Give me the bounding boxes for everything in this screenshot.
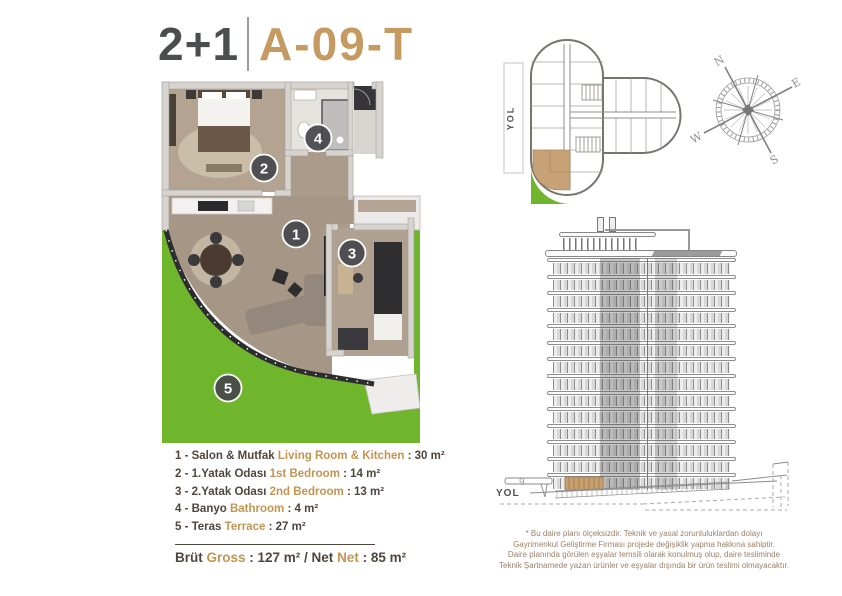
svg-text:5: 5: [224, 381, 232, 398]
room-badge-1: 1: [283, 221, 310, 248]
legend-item: 1 - Salon & Mutfak Living Room & Kitchen…: [175, 448, 425, 466]
compass-rose: N E S W: [690, 42, 815, 167]
chimney: [597, 217, 604, 232]
key-plan-road-label: YOL: [506, 106, 516, 131]
legend-item: 5 - Teras Terrace : 27 m²: [175, 519, 425, 537]
disclaimer-line: * Bu daire planı ölçeksizdir. Teknik ve …: [468, 529, 820, 540]
core-shadow: [600, 258, 640, 490]
room-badge-2: 2: [251, 155, 278, 182]
legend-divider: [175, 544, 375, 545]
svg-text:1: 1: [292, 227, 300, 244]
page-title: 2+1 A-09-T: [158, 14, 414, 74]
key-plan-unit-highlight: [533, 150, 570, 190]
roof-beam: [605, 229, 690, 231]
legend-item: 4 - Banyo Bathroom : 4 m²: [175, 501, 425, 519]
disclaimer-line: Daire planında görülen eşyalar temsili o…: [468, 550, 820, 561]
svg-text:3: 3: [348, 246, 356, 263]
room-count-label: 2+1: [158, 17, 239, 71]
core-shadow: [655, 258, 677, 490]
room-legend: 1 - Salon & Mutfak Living Room & Kitchen…: [175, 448, 425, 565]
roof-dark-patch: [652, 251, 722, 256]
room-badge-4: 4: [305, 125, 332, 152]
area-totals: Brüt Gross : 127 m² / Net Net : 85 m²: [175, 550, 425, 565]
floor-plan: 1 2 3 4 5: [158, 78, 425, 444]
key-plan: YOL: [498, 22, 688, 207]
disclaimer-line: Gayrimenkul Geliştirme Firması projede d…: [468, 540, 820, 551]
svg-text:4: 4: [314, 131, 323, 148]
compass-west-label: W: [690, 129, 705, 146]
svg-text:2: 2: [260, 161, 268, 178]
elevation-building: [553, 258, 730, 490]
building-elevation: 9 YOL: [495, 213, 805, 523]
room-badge-5: 5: [215, 375, 242, 402]
lower-balcony: [364, 374, 420, 414]
legend-item: 3 - 2.Yatak Odası 2nd Bedroom : 13 m²: [175, 484, 425, 502]
compass-east-label: E: [790, 75, 803, 90]
key-plan-road-box: YOL: [504, 63, 523, 173]
road-deck: [505, 478, 552, 484]
compass-north-label: N: [712, 53, 727, 69]
title-divider: [247, 17, 249, 71]
section-seam: [647, 258, 648, 490]
compass-south-label: S: [768, 152, 781, 167]
disclaimer-text: * Bu daire planı ölçeksizdir. Teknik ve …: [468, 529, 820, 571]
brochure-page: 2+1 A-09-T: [0, 0, 842, 596]
legend-item: 2 - 1.Yatak Odası 1st Bedroom : 14 m²: [175, 466, 425, 484]
roof-post: [688, 229, 690, 250]
floor-number-label: 9: [519, 477, 525, 488]
elevation-road-label: YOL: [496, 488, 520, 499]
room-badge-3: 3: [339, 240, 366, 267]
unit-code-label: A-09-T: [259, 17, 414, 71]
penthouse-slab: [559, 232, 656, 237]
disclaimer-line: Teknik Şartnamede yazan ürünler ve eşyal…: [468, 561, 820, 572]
